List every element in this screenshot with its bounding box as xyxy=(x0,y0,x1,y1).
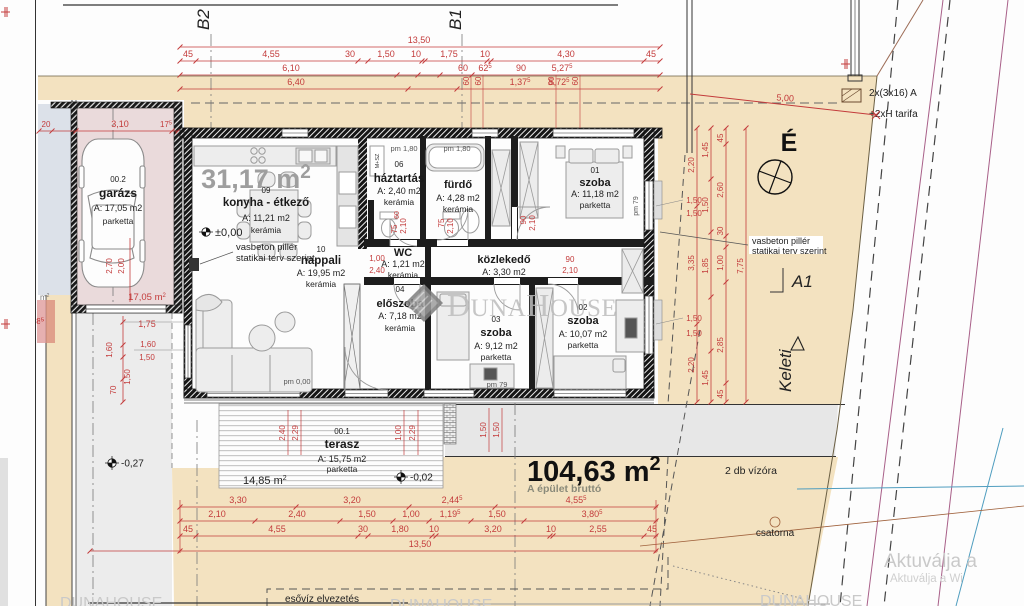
svg-text:1,50: 1,50 xyxy=(358,509,376,519)
svg-text:kerámia: kerámia xyxy=(388,270,419,280)
svg-text:4,55: 4,55 xyxy=(268,524,286,534)
svg-text:3,30: 3,30 xyxy=(229,495,247,505)
svg-text:kerámia: kerámia xyxy=(384,197,415,207)
svg-text:3,35: 3,35 xyxy=(687,255,696,271)
svg-text:garázs: garázs xyxy=(99,186,137,200)
svg-text:DUNAHOUSE: DUNAHOUSE xyxy=(60,595,162,606)
svg-text:Keleti: Keleti xyxy=(776,348,795,392)
svg-text:1,50: 1,50 xyxy=(686,329,702,338)
svg-text:parketta: parketta xyxy=(327,464,358,474)
svg-text:szoba: szoba xyxy=(579,177,611,189)
svg-text:1,60: 1,60 xyxy=(105,342,114,358)
svg-text:WC: WC xyxy=(394,247,412,259)
svg-text:2,00: 2,00 xyxy=(117,258,126,274)
svg-text:2,29: 2,29 xyxy=(291,425,300,441)
svg-text:2,29: 2,29 xyxy=(408,425,417,441)
svg-text:DUNAHOUSE: DUNAHOUSE xyxy=(760,593,862,606)
svg-text:45: 45 xyxy=(716,389,725,398)
svg-text:60: 60 xyxy=(394,211,401,219)
svg-text:10: 10 xyxy=(429,524,439,534)
svg-text:-0,27: -0,27 xyxy=(121,459,144,470)
svg-text:60: 60 xyxy=(571,76,580,85)
svg-text:2,60: 2,60 xyxy=(716,182,725,198)
svg-text:1,50: 1,50 xyxy=(701,197,710,213)
svg-text:00.1: 00.1 xyxy=(334,427,350,436)
svg-text:60: 60 xyxy=(474,76,483,85)
svg-text:10: 10 xyxy=(480,49,490,59)
svg-text:3,10: 3,10 xyxy=(111,119,129,129)
svg-text:A épület bruttó: A épület bruttó xyxy=(527,483,601,495)
svg-text:2,10: 2,10 xyxy=(446,218,455,234)
svg-text:1,50: 1,50 xyxy=(123,369,132,385)
svg-text:pm 0,00: pm 0,00 xyxy=(283,377,310,386)
svg-text:1,50: 1,50 xyxy=(488,509,506,519)
svg-text:1,80: 1,80 xyxy=(391,524,409,534)
svg-text:1,85: 1,85 xyxy=(701,258,710,274)
svg-text:45: 45 xyxy=(716,133,725,142)
svg-text:2,55: 2,55 xyxy=(589,524,607,534)
svg-text:±0,00: ±0,00 xyxy=(215,227,242,239)
svg-text:A1: A1 xyxy=(791,272,813,291)
svg-text:A: 9,12 m2: A: 9,12 m2 xyxy=(474,341,518,351)
svg-text:kerámia: kerámia xyxy=(385,323,416,333)
svg-text:00.2: 00.2 xyxy=(110,175,126,184)
svg-text:90: 90 xyxy=(547,76,556,85)
svg-text:A: 4,28 m2: A: 4,28 m2 xyxy=(436,193,480,203)
svg-text:pm 79: pm 79 xyxy=(633,196,640,216)
svg-text:parketta: parketta xyxy=(103,216,134,226)
svg-text:70: 70 xyxy=(109,385,118,394)
svg-text:60: 60 xyxy=(462,76,471,85)
svg-text:1,50: 1,50 xyxy=(686,314,702,323)
svg-text:45: 45 xyxy=(183,49,193,59)
svg-text:13,50: 13,50 xyxy=(409,539,432,549)
svg-text:2,20: 2,20 xyxy=(687,357,696,373)
svg-text:1,45: 1,45 xyxy=(701,142,710,158)
svg-text:2x(3x16) A: 2x(3x16) A xyxy=(869,88,917,99)
svg-text:90: 90 xyxy=(519,215,528,224)
svg-text:30: 30 xyxy=(358,524,368,534)
svg-text:1,50: 1,50 xyxy=(686,209,702,218)
svg-text:A: 11,21 m2: A: 11,21 m2 xyxy=(242,213,290,223)
svg-text:2,10: 2,10 xyxy=(399,218,408,234)
svg-text:10: 10 xyxy=(546,524,556,534)
svg-text:1,50: 1,50 xyxy=(479,422,488,438)
svg-text:statikai terv szerint: statikai terv szerint xyxy=(752,246,827,256)
svg-text:1,75: 1,75 xyxy=(440,49,458,59)
svg-text:2,40: 2,40 xyxy=(288,509,306,519)
svg-text:Aktuválja a: Aktuválja a xyxy=(884,551,977,572)
svg-text:DUNAHOUSE: DUNAHOUSE xyxy=(390,597,492,606)
svg-text:75: 75 xyxy=(390,224,399,233)
svg-text:1,00: 1,00 xyxy=(716,255,725,271)
svg-text:A: 19,95 m2: A: 19,95 m2 xyxy=(297,268,346,278)
svg-text:3,20: 3,20 xyxy=(484,524,502,534)
svg-text:terasz: terasz xyxy=(325,437,360,451)
svg-text:parketta: parketta xyxy=(568,340,599,350)
svg-text:2,85: 2,85 xyxy=(716,337,725,353)
svg-text:kerámia: kerámia xyxy=(443,204,474,214)
svg-text:2 db vízóra: 2 db vízóra xyxy=(725,465,777,477)
svg-text:1,45: 1,45 xyxy=(701,370,710,386)
svg-text:20: 20 xyxy=(42,120,51,129)
svg-text:2,70: 2,70 xyxy=(105,258,114,274)
svg-text:1,00: 1,00 xyxy=(369,254,385,263)
svg-text:45: 45 xyxy=(646,49,656,59)
svg-text:1,00: 1,00 xyxy=(394,425,403,441)
svg-text:13,50: 13,50 xyxy=(408,35,431,45)
svg-text:B1: B1 xyxy=(446,9,465,30)
svg-text:1,50: 1,50 xyxy=(686,196,702,205)
svg-text:konyha - étkező: konyha - étkező xyxy=(223,197,309,209)
svg-text:6,10: 6,10 xyxy=(282,63,300,73)
svg-text:4,30: 4,30 xyxy=(557,49,575,59)
svg-text:A: 2,40 m2: A: 2,40 m2 xyxy=(377,186,421,196)
svg-text:A: 10,07 m2: A: 10,07 m2 xyxy=(559,329,608,339)
svg-text:pm 1,80: pm 1,80 xyxy=(443,144,470,153)
svg-text:1,75: 1,75 xyxy=(138,319,156,329)
svg-text:2,40: 2,40 xyxy=(278,425,287,441)
svg-text:B2: B2 xyxy=(194,9,213,30)
svg-text:30: 30 xyxy=(716,226,725,235)
svg-text:14,85 m2: 14,85 m2 xyxy=(243,475,287,487)
svg-text:A: 11,18 m2: A: 11,18 m2 xyxy=(571,189,619,199)
svg-text:60: 60 xyxy=(458,63,468,73)
svg-text:06: 06 xyxy=(395,160,404,169)
svg-text:pm 1,80: pm 1,80 xyxy=(390,144,417,153)
svg-text:2,10: 2,10 xyxy=(528,215,537,231)
svg-text:A: 17,05 m2: A: 17,05 m2 xyxy=(94,203,143,213)
svg-text:vasbeton pillér: vasbeton pillér xyxy=(236,242,297,253)
svg-text:45: 45 xyxy=(647,524,657,534)
svg-text:10: 10 xyxy=(317,245,326,254)
svg-text:2,10: 2,10 xyxy=(208,509,226,519)
svg-text:kerámia: kerámia xyxy=(251,225,282,235)
svg-text:31,17 m2: 31,17 m2 xyxy=(201,162,311,194)
svg-text:30: 30 xyxy=(345,49,355,59)
svg-text:csatorna: csatorna xyxy=(756,528,795,539)
svg-text:A: 3,30 m2: A: 3,30 m2 xyxy=(482,267,526,277)
svg-text:04: 04 xyxy=(396,285,405,294)
svg-text:parketta: parketta xyxy=(580,200,611,210)
svg-text:Aktuválja a Wi: Aktuválja a Wi xyxy=(890,573,963,585)
svg-text:01: 01 xyxy=(591,166,600,175)
svg-text:M+SZ: M+SZ xyxy=(375,153,381,168)
svg-text:10: 10 xyxy=(411,49,421,59)
svg-text:75: 75 xyxy=(437,218,446,227)
svg-text:szoba: szoba xyxy=(480,327,512,339)
svg-text:1,50: 1,50 xyxy=(492,422,501,438)
svg-text:háztartás: háztartás xyxy=(374,173,425,185)
svg-text:statikai terv szerint: statikai terv szerint xyxy=(236,253,315,264)
svg-text:6,40: 6,40 xyxy=(287,77,305,87)
svg-text:45: 45 xyxy=(183,524,193,534)
svg-text:09: 09 xyxy=(262,186,271,195)
svg-text:1,00: 1,00 xyxy=(402,509,420,519)
svg-text:4,55: 4,55 xyxy=(262,49,280,59)
svg-text:É: É xyxy=(781,128,798,157)
svg-text:7,75: 7,75 xyxy=(736,258,745,274)
svg-text:kerámia: kerámia xyxy=(306,279,337,289)
svg-text:2,20: 2,20 xyxy=(687,157,696,173)
svg-text:2,10: 2,10 xyxy=(562,266,578,275)
svg-text:parketta: parketta xyxy=(481,352,512,362)
svg-text:közlekedő: közlekedő xyxy=(477,254,530,266)
svg-text:A: 15,75 m2: A: 15,75 m2 xyxy=(318,454,367,464)
svg-text:1,50: 1,50 xyxy=(377,49,395,59)
svg-text:pm 79: pm 79 xyxy=(487,380,508,389)
svg-text:1,60: 1,60 xyxy=(140,340,156,349)
svg-text:A: 1,21 m2: A: 1,21 m2 xyxy=(381,259,425,269)
svg-text:3,20: 3,20 xyxy=(343,495,361,505)
svg-text:90: 90 xyxy=(516,63,526,73)
svg-text:90: 90 xyxy=(566,255,575,264)
svg-text:vasbeton pillér: vasbeton pillér xyxy=(752,236,810,246)
svg-text:2,40: 2,40 xyxy=(369,266,385,275)
svg-text:17,05 m2: 17,05 m2 xyxy=(128,292,166,303)
svg-text:1,50: 1,50 xyxy=(139,353,155,362)
svg-text:fürdő: fürdő xyxy=(444,179,472,191)
svg-text:5,00: 5,00 xyxy=(776,92,794,103)
svg-text:-0,02: -0,02 xyxy=(410,473,433,484)
